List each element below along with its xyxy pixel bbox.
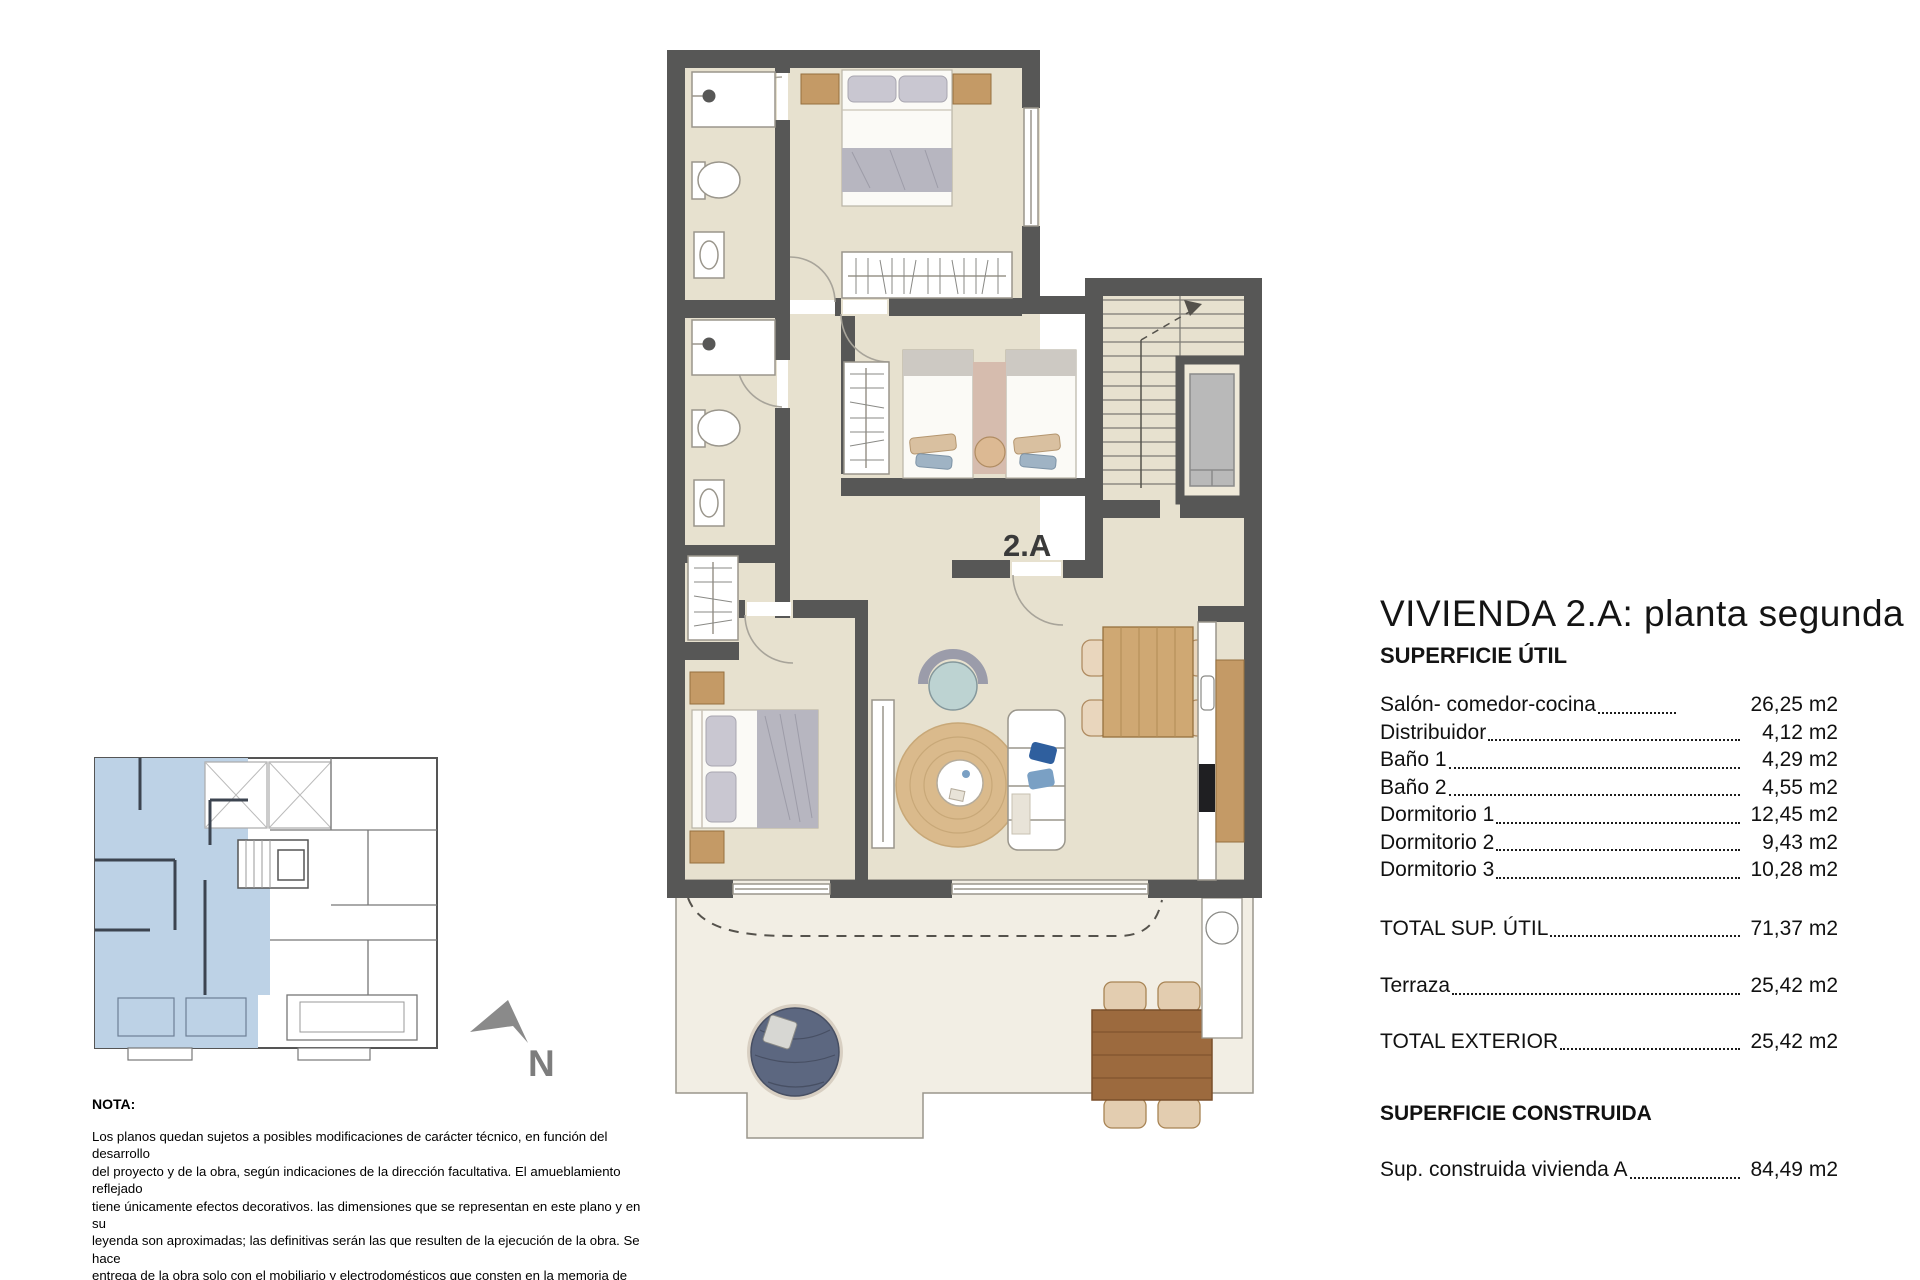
wardrobe <box>688 556 738 640</box>
table-row: Dormitorio 1 12,45 m2 <box>1380 801 1838 829</box>
wardrobe <box>844 362 889 474</box>
row-value: 10,28 m2 <box>1742 856 1838 884</box>
dot-leader <box>1598 712 1676 714</box>
row-value: 26,25 m2 <box>1742 691 1838 719</box>
section-superficie-construida: SUPERFICIE CONSTRUIDA <box>1380 1102 1838 1126</box>
row-value: 25,42 m2 <box>1742 1028 1838 1056</box>
dot-leader <box>1488 739 1740 741</box>
side-table <box>975 437 1005 467</box>
total-exterior-row: TOTAL EXTERIOR 25,42 m2 <box>1380 1028 1838 1056</box>
row-value: 4,29 m2 <box>1742 746 1838 774</box>
row-value: 25,42 m2 <box>1742 972 1838 1000</box>
double-bed <box>842 70 952 206</box>
row-label: Baño 1 <box>1380 746 1447 774</box>
key-core <box>238 840 308 888</box>
cooktop-icon <box>1199 764 1215 812</box>
dot-leader <box>1452 993 1740 995</box>
outdoor-counter <box>1202 898 1242 1038</box>
row-label: Salón- comedor-cocina <box>1380 691 1596 719</box>
nota-body: Los planos quedan sujetos a posibles mod… <box>92 1128 644 1280</box>
row-value: 84,49 m2 <box>1742 1156 1838 1184</box>
nightstand <box>953 74 991 104</box>
pouf <box>747 1004 843 1100</box>
nota-block: NOTA: Los planos quedan sujetos a posibl… <box>92 1096 644 1280</box>
row-label: Baño 2 <box>1380 774 1447 802</box>
nightstand <box>801 74 839 104</box>
toilet-icon <box>698 410 740 446</box>
dot-leader <box>1560 1048 1740 1050</box>
row-value: 4,12 m2 <box>1742 719 1838 747</box>
nightstand <box>690 831 724 863</box>
dot-leader <box>1496 849 1740 851</box>
construida-row: Sup. construida vivienda A 84,49 m2 <box>1380 1156 1838 1184</box>
row-label: TOTAL EXTERIOR <box>1380 1028 1558 1056</box>
single-bed <box>1006 350 1076 478</box>
kitchen-sink-icon <box>1201 676 1214 710</box>
coffee-table <box>937 760 983 806</box>
row-label: Sup. construida vivienda A <box>1380 1156 1628 1184</box>
row-value: 71,37 m2 <box>1742 915 1838 943</box>
key-plan <box>95 758 437 1060</box>
sink-icon <box>694 480 724 526</box>
sofa <box>1008 710 1065 850</box>
unit-label: 2.A <box>1003 528 1051 563</box>
north-label: N <box>528 1043 555 1084</box>
area-table: Salón- comedor-cocina 26,25 m2 Distribui… <box>1380 691 1838 884</box>
terraza-row: Terraza 25,42 m2 <box>1380 972 1838 1000</box>
row-value: 4,55 m2 <box>1742 774 1838 802</box>
elevator <box>1180 360 1244 500</box>
row-label: TOTAL SUP. ÚTIL <box>1380 915 1548 943</box>
dot-leader <box>1630 1177 1741 1179</box>
single-bed <box>903 350 973 478</box>
row-label: Dormitorio 3 <box>1380 856 1494 884</box>
nightstand <box>690 672 724 704</box>
table-row: Baño 1 4,29 m2 <box>1380 746 1838 774</box>
north-arrow-icon <box>470 1000 528 1043</box>
dot-leader <box>1449 794 1740 796</box>
kitchen-cabinet-run <box>1198 622 1216 880</box>
table-row: Dormitorio 2 9,43 m2 <box>1380 829 1838 857</box>
wardrobe <box>842 252 1012 298</box>
dot-leader <box>1496 877 1740 879</box>
outdoor-basin-icon <box>1206 912 1238 944</box>
table-row: Distribuidor 4,12 m2 <box>1380 719 1838 747</box>
info-panel: VIVIENDA 2.A: planta segunda SUPERFICIE … <box>1380 593 1838 1184</box>
page-title: VIVIENDA 2.A: planta segunda <box>1380 593 1838 635</box>
sink-icon <box>694 232 724 278</box>
total-util-row: TOTAL SUP. ÚTIL 71,37 m2 <box>1380 915 1838 943</box>
dot-leader <box>1496 822 1740 824</box>
dot-leader <box>1449 767 1740 769</box>
double-bed <box>692 710 818 828</box>
kitchen <box>1198 622 1244 880</box>
nota-heading: NOTA: <box>92 1096 644 1112</box>
table-row: Baño 2 4,55 m2 <box>1380 774 1838 802</box>
terrace <box>676 880 1253 1138</box>
row-label: Dormitorio 1 <box>1380 801 1494 829</box>
main-floor-plan: 2.A <box>667 50 1262 1138</box>
section-superficie-util: SUPERFICIE ÚTIL <box>1380 643 1838 669</box>
north-arrow: N <box>470 1000 555 1084</box>
table-row: Dormitorio 3 10,28 m2 <box>1380 856 1838 884</box>
tv-sideboard <box>872 700 894 848</box>
row-label: Dormitorio 2 <box>1380 829 1494 857</box>
table-row: Salón- comedor-cocina 26,25 m2 <box>1380 691 1838 719</box>
row-label: Distribuidor <box>1380 719 1486 747</box>
kitchen-counter <box>1216 660 1244 842</box>
dot-leader <box>1550 935 1740 937</box>
bedroom-2 <box>844 350 1076 478</box>
row-value: 9,43 m2 <box>1742 829 1838 857</box>
page: 2.A <box>0 0 1920 1280</box>
row-label: Terraza <box>1380 972 1450 1000</box>
row-value: 12,45 m2 <box>1742 801 1838 829</box>
toilet-icon <box>698 162 740 198</box>
